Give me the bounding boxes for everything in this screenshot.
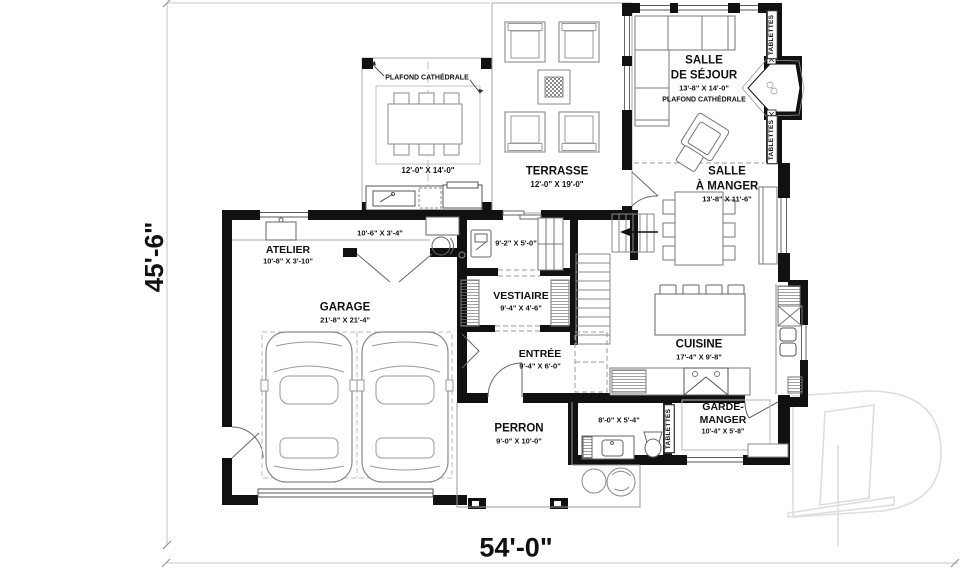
fireplace [742, 55, 804, 119]
tablettes-shelf-label-top: TABLETTES [767, 11, 778, 60]
kitchen-island [655, 285, 745, 335]
sejour-note: PLAFOND CATHÉDRALE [662, 97, 745, 104]
overall-height-dimension: 45'-6" [141, 222, 167, 293]
garde-manger-label-line1: GARDE- [702, 402, 743, 413]
perron-label: PERRON [494, 423, 543, 435]
atelier-dims: 10'-8" X 3'-10" [263, 257, 313, 265]
laundry-dims: 9'-2" X 5'-0" [495, 239, 537, 247]
covered-terrace-dims: 12'-0" X 14'-0" [401, 167, 454, 175]
atelier-label: ATELIER [266, 245, 310, 256]
covered-terrace-note: PLAFOND CATHÉDRALE [385, 75, 468, 82]
nook-dims: 10'-6" X 3'-4" [357, 229, 403, 237]
tablettes-shelf-label-pantry: TABLETTES [664, 405, 675, 454]
laundry-appliance [471, 230, 491, 257]
sejour-label-line2: DE SÉJOUR [671, 70, 737, 82]
bain-dims: 8'-0" X 5'-4" [598, 416, 640, 424]
tablettes-shelf-label-bottom: TABLETTES [767, 116, 778, 165]
kitchen-right-cabinets [776, 284, 802, 394]
entree-dims: 9'-4" X 6'-0" [519, 362, 561, 370]
floor-plan: PLAFOND CATHÉDRALE 12'-0" X 14'-0" TERRA… [0, 0, 960, 569]
garage-door [258, 489, 433, 497]
garde-manger-dims: 10'-4" X 5'-8" [702, 429, 745, 436]
manger-dims: 13'-8" X 11'-6" [702, 195, 751, 203]
cuisine-dims: 17'-4" X 9'-8" [676, 353, 722, 361]
terrasse-dims: 12'-0" X 19'-0" [530, 181, 583, 189]
sejour-label-line1: SALLE [685, 55, 723, 67]
mudroom-cabinet [538, 218, 563, 270]
cuisine-label: CUISINE [676, 339, 723, 351]
garde-manger-label-line2: MANGER [700, 415, 747, 426]
sejour-dims: 13'-8" X 14'-0" [679, 84, 729, 92]
vestiaire-dims: 9'-4" X 4'-6" [500, 304, 542, 312]
garage-dims: 21'-8" X 21'-4" [320, 316, 370, 324]
garage-label: GARAGE [320, 302, 370, 314]
vestiaire-label: VESTIAIRE [493, 291, 548, 302]
buffet [759, 187, 777, 264]
terrasse-label: TERRASSE [526, 166, 589, 178]
staircase [576, 214, 654, 344]
perron-dims: 9'-0" X 10'-0" [496, 437, 542, 445]
manger-label-line2: À MANGER [696, 181, 759, 193]
bathroom-fixtures [582, 432, 662, 459]
watermark-logo [788, 391, 941, 546]
manger-label-line1: SALLE [708, 166, 746, 178]
entree-label: ENTRÉE [519, 349, 562, 360]
kitchen-counter [610, 368, 750, 395]
overall-width-dimension: 54'-0" [479, 535, 552, 562]
